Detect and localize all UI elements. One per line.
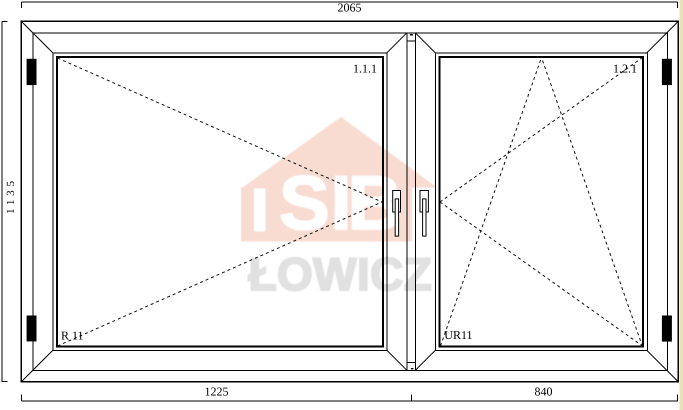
svg-text:ŁOWICZ: ŁOWICZ: [249, 248, 433, 300]
svg-text:R 11: R 11: [61, 328, 84, 342]
svg-text:2065: 2065: [338, 1, 362, 15]
svg-text:1225: 1225: [205, 384, 229, 398]
svg-text:UR11: UR11: [444, 328, 472, 342]
svg-text:1.1.1: 1.1.1: [353, 62, 377, 76]
svg-text:840: 840: [535, 385, 553, 399]
svg-text:S: S: [279, 161, 330, 246]
svg-text:1.2.1: 1.2.1: [613, 61, 637, 75]
